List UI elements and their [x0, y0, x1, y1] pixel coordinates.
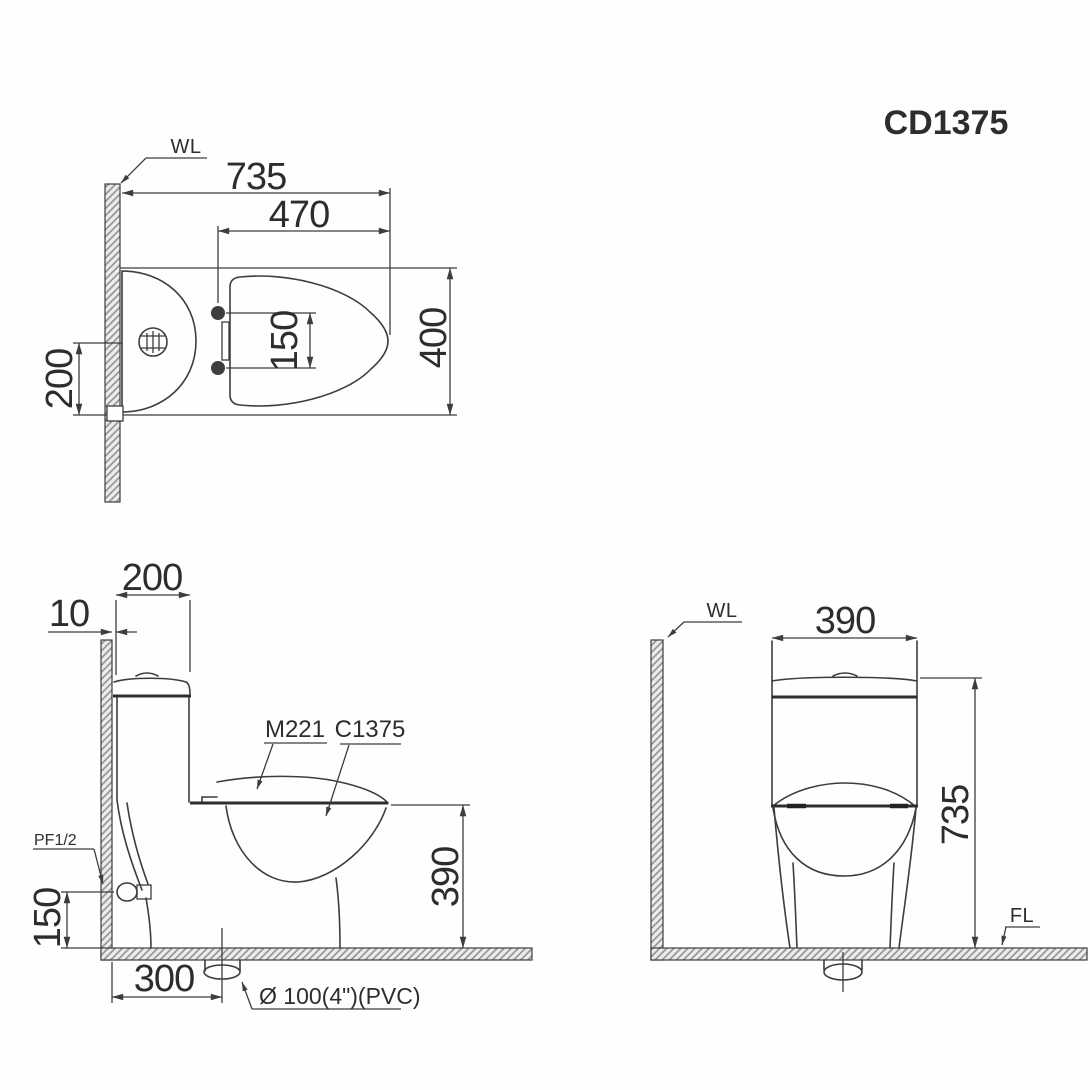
dim-text-seat-depth: 470 — [269, 194, 329, 236]
wall-line-label: WL — [171, 136, 202, 158]
hinge-bolt-top — [211, 306, 225, 320]
bowl-side — [226, 806, 386, 882]
floor-line-label: FL — [1010, 905, 1034, 927]
drain-label: Ø 100(4")(PVC) — [259, 983, 421, 1009]
tank-body-side — [117, 698, 189, 802]
dim-text-overall-depth: 735 — [226, 156, 286, 198]
tank-lid-side — [114, 678, 190, 694]
dim-text-tank-width: 390 — [815, 600, 875, 642]
wall-section-hatch — [101, 640, 112, 960]
pedestal-side — [146, 878, 340, 948]
dim-text-supply-offset: 200 — [39, 349, 81, 409]
seat-model-leader — [257, 744, 273, 789]
dim-text-overall-width: 400 — [413, 308, 455, 368]
wl-leader-line — [668, 622, 684, 637]
rear-flush-passage-side — [117, 800, 148, 890]
model-number-title: CD1375 — [884, 104, 1009, 142]
top-view: WL 735 470 400 200 150 — [39, 136, 457, 502]
front-view: WL 390 735 FL — [651, 600, 1087, 992]
pedestal-outer-front — [774, 808, 916, 948]
wall-section-hatch — [651, 640, 663, 960]
tank-lid-front — [772, 677, 917, 681]
tank-lid-button-front — [833, 673, 857, 676]
tank-sides-front — [772, 641, 917, 806]
tank-lid-button-side — [136, 673, 158, 676]
bowl-model-label: C1375 — [335, 716, 406, 743]
wl-leader-line — [121, 158, 146, 183]
seat-model-label: M221 — [265, 716, 325, 743]
top-extension-lines — [73, 188, 457, 415]
dim-text-drain-setout: 300 — [134, 958, 194, 1000]
drain-leader-line — [242, 982, 252, 1009]
dim-text-rim-height: 390 — [425, 847, 467, 907]
floor-section-hatch — [651, 948, 1087, 960]
hinge-bolt-bottom — [211, 361, 225, 375]
seat-lid-front — [773, 783, 915, 806]
dim-text-wall-gap: 10 — [49, 593, 89, 635]
inlet-label: PF1/2 — [34, 832, 77, 849]
dim-text-overall-height: 735 — [935, 785, 977, 845]
wall-line-label: WL — [707, 600, 738, 622]
shutoff-valve-body — [117, 883, 137, 901]
seat-lid-side — [217, 776, 388, 803]
dim-text-bolt-spacing: 150 — [264, 311, 306, 371]
technical-drawing: CD1375 WL 735 470 400 200 150 — [0, 0, 1090, 1090]
supply-connection-plan — [107, 406, 123, 421]
seat-lid-plan-outline — [230, 276, 388, 406]
drawing-sheet: CD1375 WL 735 470 400 200 150 — [0, 0, 1090, 1090]
seat-hinge-plan — [222, 322, 229, 360]
shutoff-valve-nipple — [137, 885, 151, 899]
side-view: 200 10 PF1/2 150 390 300 — [27, 557, 532, 1009]
fl-leader-line — [1002, 927, 1006, 945]
dim-text-tank-depth: 200 — [122, 557, 182, 599]
flush-knob-knurling — [141, 331, 165, 353]
dim-text-inlet-height: 150 — [27, 888, 69, 948]
